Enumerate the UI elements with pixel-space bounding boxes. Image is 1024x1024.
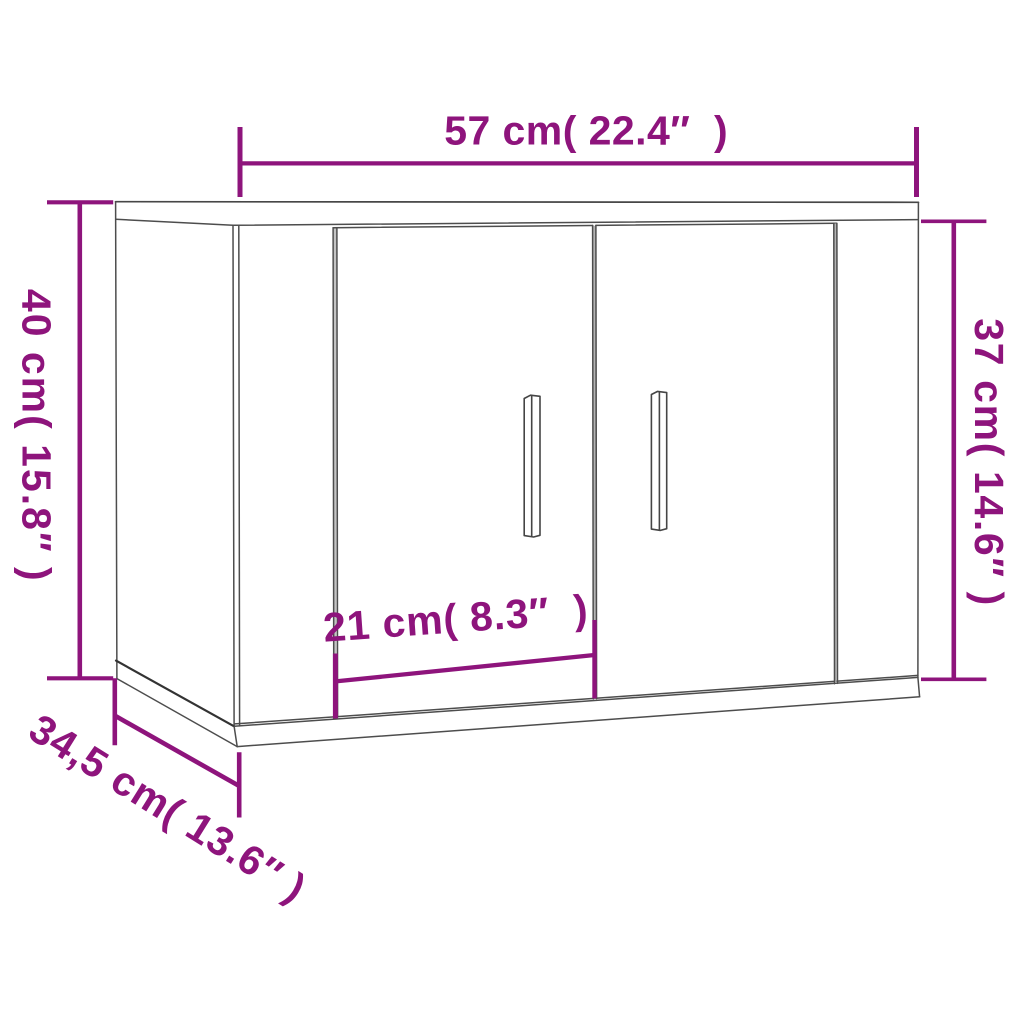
svg-text:57 cm( 22.4″ ): 57 cm( 22.4″ ): [444, 107, 728, 153]
svg-text:37 cm( 14.6″ ): 37 cm( 14.6″ ): [966, 318, 1012, 607]
svg-text:40 cm( 15.8″ ): 40 cm( 15.8″ ): [14, 289, 60, 583]
